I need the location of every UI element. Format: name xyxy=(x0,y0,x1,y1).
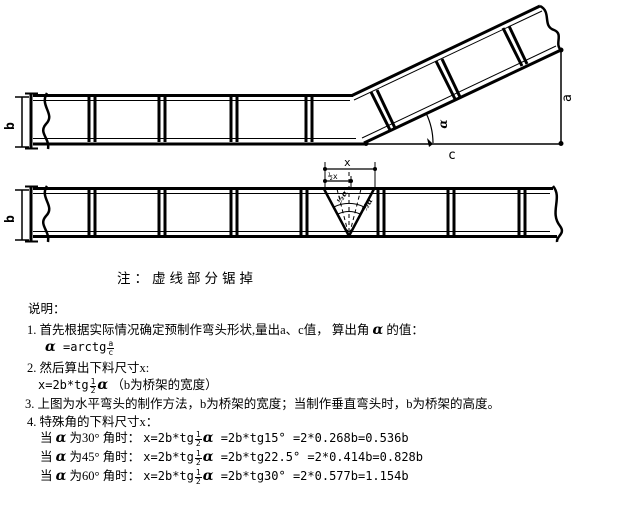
row-formula: x=2b*tg xyxy=(143,431,194,445)
dimension-b-bottom-label: b xyxy=(3,215,18,223)
alpha-symbol: α xyxy=(203,430,214,446)
fraction-denominator: 2 xyxy=(195,459,202,467)
row-result: =2b*tg30° =2*0.577b=1.154b xyxy=(213,469,408,483)
dimension-triangle: a c α xyxy=(364,48,576,164)
alpha-symbol: α xyxy=(203,449,214,465)
explain-item-3: 3. 上图为水平弯头的制作方法，b为桥架的宽度；当制作垂直弯头时，b为桥架的高度… xyxy=(25,396,500,412)
break-line-icon xyxy=(43,186,49,242)
tray-bottom-rails xyxy=(33,186,562,242)
tray-top-diagram: b xyxy=(3,6,575,163)
alpha-symbol: α xyxy=(97,377,108,393)
angle-alpha-label: α xyxy=(436,119,450,128)
fraction-half: 12 xyxy=(90,378,97,395)
formula-pre: x=2b*tg xyxy=(38,378,89,392)
row-formula: x=2b*tg xyxy=(143,469,194,483)
explain-item-2: 2. 然后算出下料尺寸x: xyxy=(27,360,149,376)
row-result: =2b*tg15° =2*0.268b=0.536b xyxy=(213,431,408,445)
tray-top-left-end xyxy=(25,93,49,149)
tray-bottom-rungs xyxy=(89,189,525,235)
alpha-symbol: α xyxy=(56,430,67,446)
alpha-symbol: α xyxy=(56,468,67,484)
explain-item-1: 1. 首先根据实际情况确定预制作弯头形状,量出a、c值， 算出角 α 的值： xyxy=(27,322,424,338)
fraction-denominator: 2 xyxy=(195,478,202,486)
angle-arc xyxy=(338,211,360,214)
row-mid: 为45° 角时： xyxy=(66,450,143,464)
fraction-denominator: 2 xyxy=(90,387,97,395)
break-line-icon xyxy=(43,93,49,149)
fraction-half: 12 xyxy=(195,469,202,486)
special-angle-row-60: 当 α 为60° 角时： x=2b*tg12α =2b*tg30° =2*0.5… xyxy=(40,468,409,486)
tray-bottom-left-end xyxy=(25,186,49,242)
row-result: =2b*tg22.5° =2*0.414b=0.828b xyxy=(213,450,423,464)
break-line-icon xyxy=(553,186,562,242)
fraction-denominator: c xyxy=(107,349,114,357)
row-mid: 为60° 角时： xyxy=(66,469,143,483)
row-mid: 为30° 角时： xyxy=(66,431,143,445)
item1-text-end: 的值： xyxy=(383,323,424,337)
dimension-x: x ½x xyxy=(323,156,377,188)
angle-arc xyxy=(426,113,433,143)
tray-top-incline xyxy=(352,6,561,143)
tray-top-rungs xyxy=(89,96,312,142)
alpha-symbol: α xyxy=(56,449,67,465)
dimension-a-label: a xyxy=(560,94,575,102)
page: b xyxy=(0,0,618,511)
alpha-symbol: α xyxy=(372,322,383,338)
fraction-a-over-c: ac xyxy=(107,340,114,357)
dimension-b-top: b xyxy=(3,97,29,147)
note-sawed-off: 注：虚线部分锯掉 xyxy=(117,267,257,287)
arrowhead-icon xyxy=(427,138,433,147)
row-pre: 当 xyxy=(40,469,56,483)
fraction-half: 12 xyxy=(195,431,202,448)
item1-text: 1. 首先根据实际情况确定预制作弯头形状,量出a、c值， 算出角 xyxy=(27,323,372,337)
cable-tray-drawing: b xyxy=(0,0,618,300)
dimension-b-bottom: b xyxy=(3,190,29,240)
half-alpha-right-label: ½α xyxy=(360,197,375,213)
break-line-icon xyxy=(540,6,561,50)
formula-arctg: α =arctgac xyxy=(45,339,115,357)
special-angle-row-30: 当 α 为30° 角时： x=2b*tg12α =2b*tg15° =2*0.2… xyxy=(40,430,409,448)
fraction-half: 12 xyxy=(195,450,202,467)
row-formula: x=2b*tg xyxy=(143,450,194,464)
fraction-denominator: 2 xyxy=(195,440,202,448)
special-angle-row-45: 当 α 为45° 角时： x=2b*tg12α =2b*tg22.5° =2*0… xyxy=(40,449,423,467)
formula-x: x=2b*tg12α （b为桥架的宽度） xyxy=(38,377,218,395)
row-pre: 当 xyxy=(40,450,56,464)
formula-eq: =arctg xyxy=(56,340,107,354)
formula-note: （b为桥架的宽度） xyxy=(108,378,217,392)
explain-item-4: 4. 特殊角的下料尺寸x： xyxy=(27,414,158,430)
tray-bottom-diagram: b xyxy=(3,156,562,242)
dimension-c-label: c xyxy=(448,148,456,163)
tray-top-rails xyxy=(33,96,366,145)
explain-heading: 说明： xyxy=(28,301,66,317)
row-pre: 当 xyxy=(40,431,56,445)
dimension-x-label: x xyxy=(344,156,351,169)
alpha-symbol: α xyxy=(45,339,56,355)
dimension-half-x-label: ½x xyxy=(328,171,338,181)
dimension-b-top-label: b xyxy=(3,122,18,130)
alpha-symbol: α xyxy=(203,468,214,484)
